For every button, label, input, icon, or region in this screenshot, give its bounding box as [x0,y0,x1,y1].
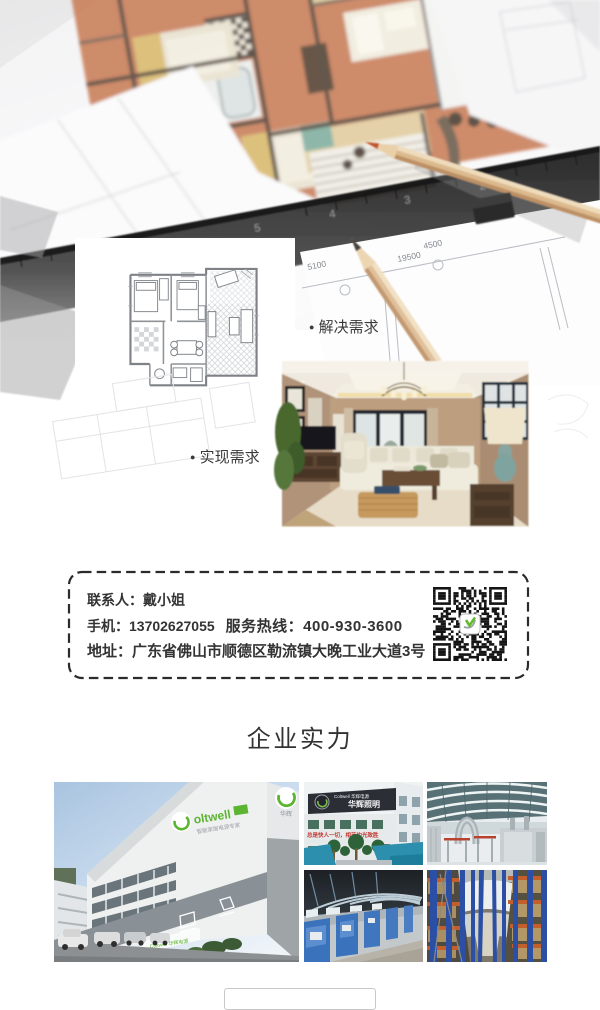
svg-text:Coltwell 华辉电源: Coltwell 华辉电源 [334,793,370,800]
svg-text:华辉: 华辉 [280,810,292,818]
svg-text:华辉照明: 华辉照明 [348,799,380,809]
svg-text:总是快人一切，相节约光致胜: 总是快人一切，相节约光致胜 [307,831,379,839]
